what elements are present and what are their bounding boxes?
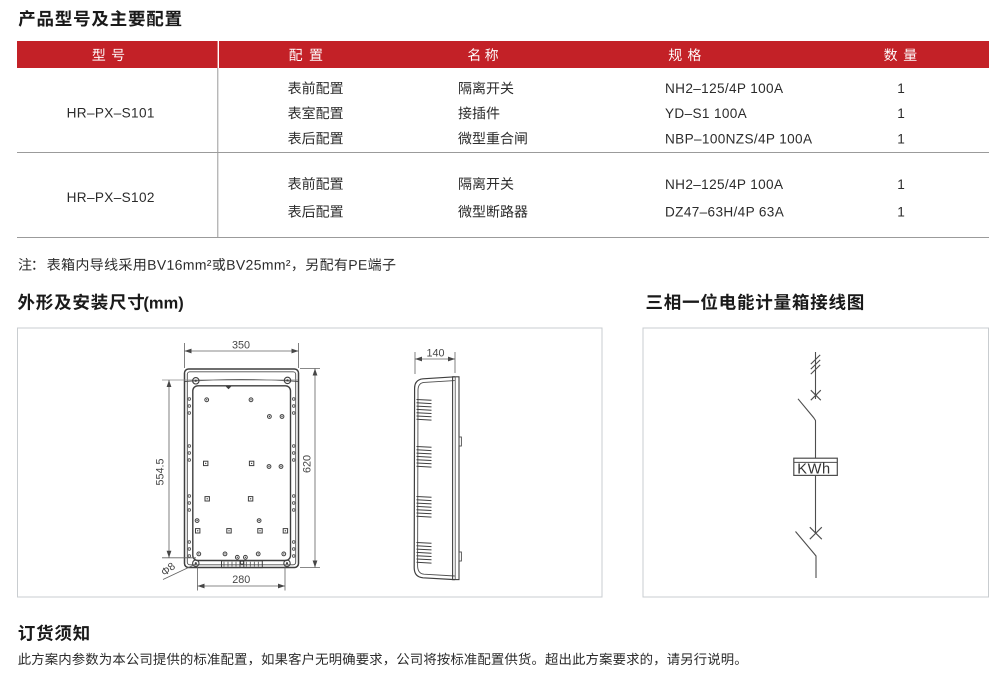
svg-text:NBP–100NZS/4P 100A: NBP–100NZS/4P 100A — [665, 131, 813, 146]
svg-text:140: 140 — [426, 348, 444, 360]
svg-text:620: 620 — [301, 455, 313, 473]
svg-text:KWh: KWh — [797, 462, 830, 478]
svg-text:DZ47–63H/4P 63A: DZ47–63H/4P 63A — [665, 205, 785, 220]
svg-text:554.5: 554.5 — [154, 458, 166, 485]
svg-text:350: 350 — [232, 340, 250, 352]
svg-text:1: 1 — [897, 131, 905, 146]
svg-text:280: 280 — [232, 574, 250, 586]
svg-text:1: 1 — [897, 106, 905, 121]
svg-text:1: 1 — [897, 177, 905, 192]
svg-text:HR–PX–S102: HR–PX–S102 — [67, 190, 155, 205]
svg-text:NH2–125/4P 100A: NH2–125/4P 100A — [665, 81, 784, 96]
svg-text:NH2–125/4P 100A: NH2–125/4P 100A — [665, 177, 784, 192]
svg-text:1: 1 — [897, 205, 905, 220]
svg-text:YD–S1 100A: YD–S1 100A — [665, 106, 748, 121]
svg-text:HR–PX–S101: HR–PX–S101 — [67, 106, 155, 121]
svg-text:1: 1 — [897, 81, 905, 96]
